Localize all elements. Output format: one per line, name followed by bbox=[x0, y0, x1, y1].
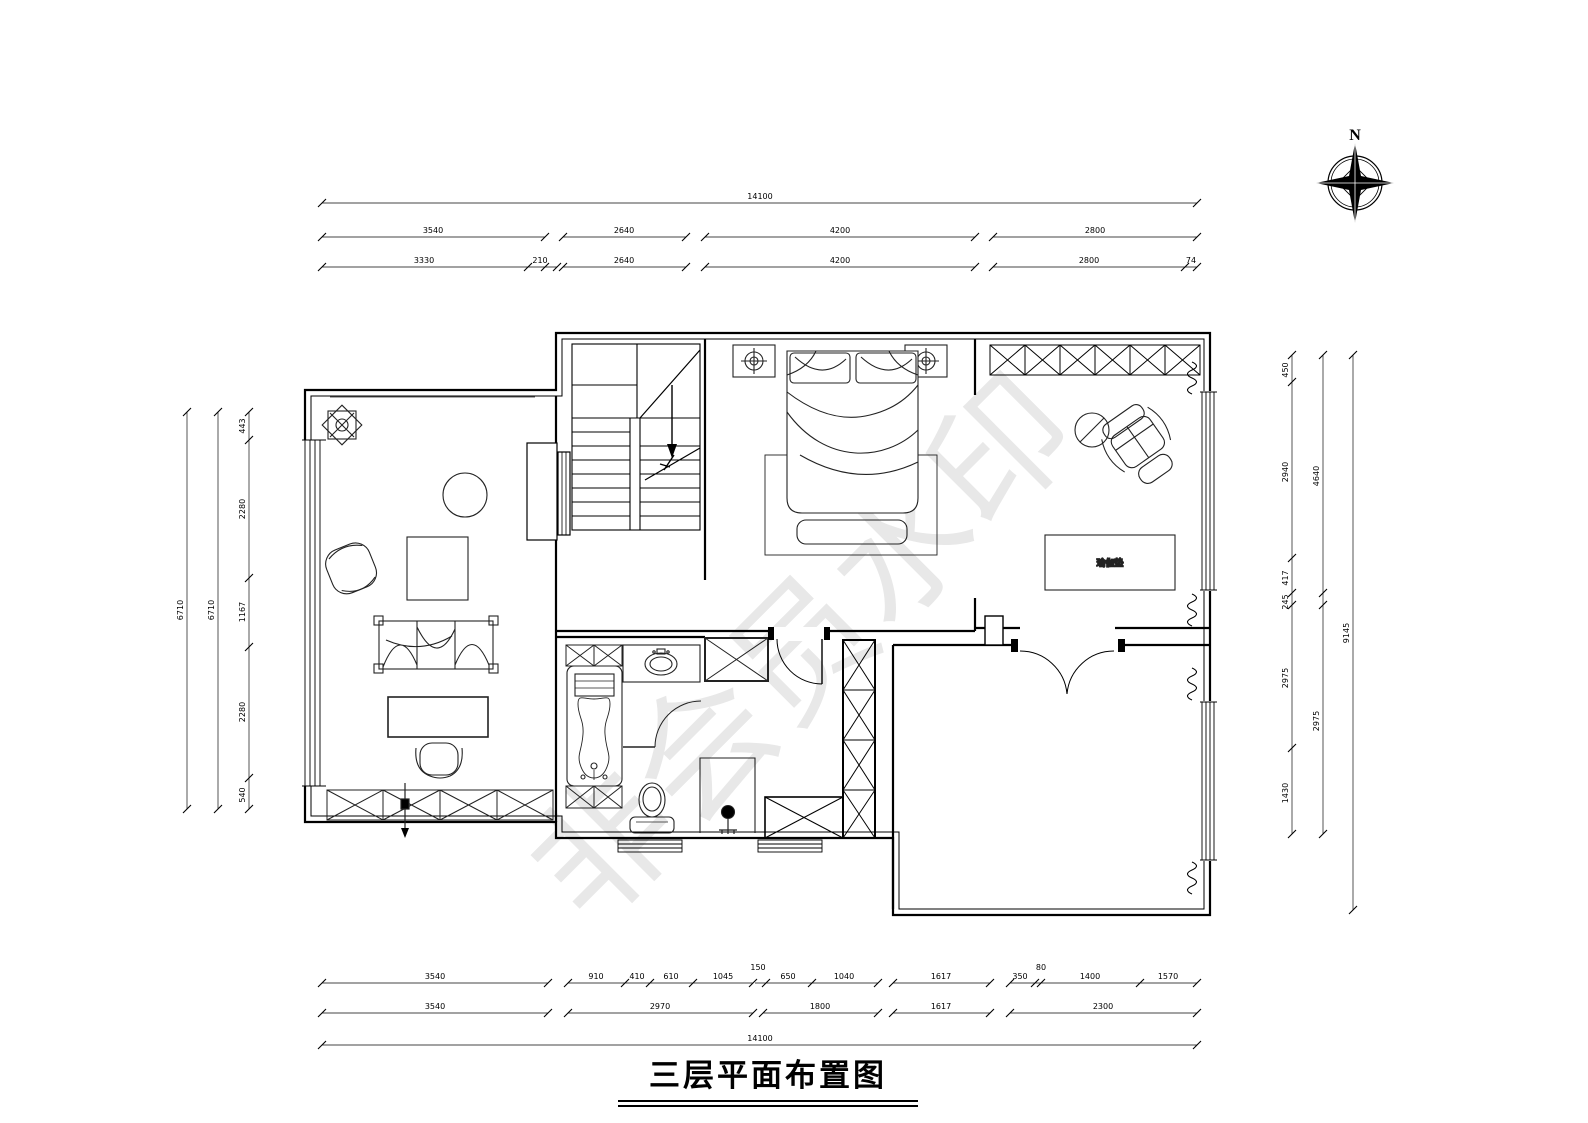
sink bbox=[623, 645, 700, 682]
hall-door-arc bbox=[777, 639, 822, 684]
staircase bbox=[572, 344, 700, 530]
dim-label: 1040 bbox=[834, 972, 854, 981]
dim-label: 610 bbox=[663, 972, 678, 981]
plant bbox=[322, 405, 362, 445]
shower-room bbox=[700, 758, 755, 834]
dim-label: 14100 bbox=[747, 192, 772, 201]
floorplan-drawing: 14100 3540 2640 4200 2800 3330 210 2640 … bbox=[0, 0, 1588, 1123]
dim-label: 2640 bbox=[614, 226, 634, 235]
dim-label: 540 bbox=[238, 787, 247, 802]
dim-label: 150 bbox=[750, 963, 765, 972]
drawing-title-text: 三层平面布置图 bbox=[649, 1058, 887, 1094]
dim-label: 4200 bbox=[830, 256, 850, 265]
north-compass: N bbox=[1316, 127, 1394, 223]
corridor-closets bbox=[765, 640, 875, 838]
office-chair bbox=[1092, 396, 1188, 494]
dim-label: 6710 bbox=[207, 600, 216, 620]
dim-label: 4640 bbox=[1312, 466, 1321, 486]
dim-label: 2940 bbox=[1281, 462, 1290, 482]
dim-label: 910 bbox=[588, 972, 603, 981]
dim-label: 2640 bbox=[614, 256, 634, 265]
bedroom-furniture bbox=[733, 345, 947, 555]
armchair bbox=[321, 538, 381, 598]
dim-label: 2800 bbox=[1079, 256, 1099, 265]
dim-label: 1617 bbox=[931, 1002, 951, 1011]
dim-label: 2300 bbox=[1093, 1002, 1113, 1011]
toilet bbox=[630, 783, 674, 833]
dim-label: 443 bbox=[238, 418, 247, 433]
double-bed bbox=[787, 351, 918, 513]
dim-label: 417 bbox=[1281, 570, 1290, 585]
stool bbox=[443, 473, 487, 517]
thresholds bbox=[618, 840, 822, 852]
round-table bbox=[1075, 413, 1109, 447]
dim-label: 2975 bbox=[1312, 711, 1321, 731]
dim-label: 210 bbox=[532, 256, 547, 265]
shower-niche-hatch bbox=[705, 638, 768, 681]
dim-label: 3330 bbox=[414, 256, 434, 265]
dim-label: 1570 bbox=[1158, 972, 1178, 981]
side-table bbox=[407, 537, 468, 600]
tall-closet-hatch bbox=[843, 640, 875, 838]
floorplan-page: 非会员水印 14100 3540 2640 4200 2800 3330 210… bbox=[0, 0, 1588, 1123]
dim-label: 450 bbox=[1281, 362, 1290, 377]
section-marker bbox=[401, 783, 409, 838]
right-room-furniture: 瑜伽垫 bbox=[990, 345, 1200, 590]
bed-bench bbox=[797, 520, 907, 544]
yoga-mat: 瑜伽垫 bbox=[1045, 535, 1175, 590]
drawing-title: 三层平面布置图 bbox=[618, 1050, 918, 1107]
dim-label: 3540 bbox=[423, 226, 443, 235]
nightstand-left bbox=[733, 345, 775, 377]
dim-label: 1045 bbox=[713, 972, 733, 981]
dim-label: 245 bbox=[1281, 594, 1290, 609]
dim-label: 9145 bbox=[1342, 623, 1351, 643]
dim-label: 74 bbox=[1186, 256, 1196, 265]
dim-label: 2970 bbox=[650, 1002, 670, 1011]
shower-head bbox=[722, 806, 735, 819]
tub-cabinets bbox=[566, 645, 622, 808]
bathtub bbox=[567, 666, 622, 786]
dim-label: 3540 bbox=[425, 972, 445, 981]
dim-label: 3540 bbox=[425, 1002, 445, 1011]
exterior-walls bbox=[305, 333, 1210, 915]
closet-hatch bbox=[990, 345, 1200, 375]
dim-label: 350 bbox=[1012, 972, 1027, 981]
bath-door-arc bbox=[655, 701, 701, 747]
bathroom bbox=[566, 638, 768, 834]
dim-label: 1167 bbox=[238, 602, 247, 622]
dim-label: 1617 bbox=[931, 972, 951, 981]
dim-label: 2800 bbox=[1085, 226, 1105, 235]
compass-north-label: N bbox=[1349, 127, 1361, 144]
left-room-furniture bbox=[321, 397, 553, 838]
dimension-lines bbox=[187, 203, 1353, 1045]
daybed bbox=[374, 616, 498, 673]
dim-label: 2280 bbox=[238, 499, 247, 519]
double-door-arcs bbox=[1020, 651, 1114, 694]
dim-label: 6710 bbox=[176, 600, 185, 620]
dimension-ticks bbox=[183, 199, 1357, 1049]
dim-label: 1400 bbox=[1080, 972, 1100, 981]
dim-label: 650 bbox=[780, 972, 795, 981]
dim-label: 410 bbox=[629, 972, 644, 981]
dim-label: 2280 bbox=[238, 702, 247, 722]
dim-label: 80 bbox=[1036, 963, 1046, 972]
stair-direction-arrow bbox=[667, 444, 677, 458]
dim-label: 4200 bbox=[830, 226, 850, 235]
room-item-label: 瑜伽垫 bbox=[1096, 557, 1123, 569]
dim-label: 14100 bbox=[747, 1034, 772, 1043]
dim-label: 1430 bbox=[1281, 783, 1290, 803]
dim-label: 2975 bbox=[1281, 668, 1290, 688]
desk bbox=[388, 697, 488, 737]
dim-label: 1800 bbox=[810, 1002, 830, 1011]
desk-chair bbox=[416, 743, 462, 778]
